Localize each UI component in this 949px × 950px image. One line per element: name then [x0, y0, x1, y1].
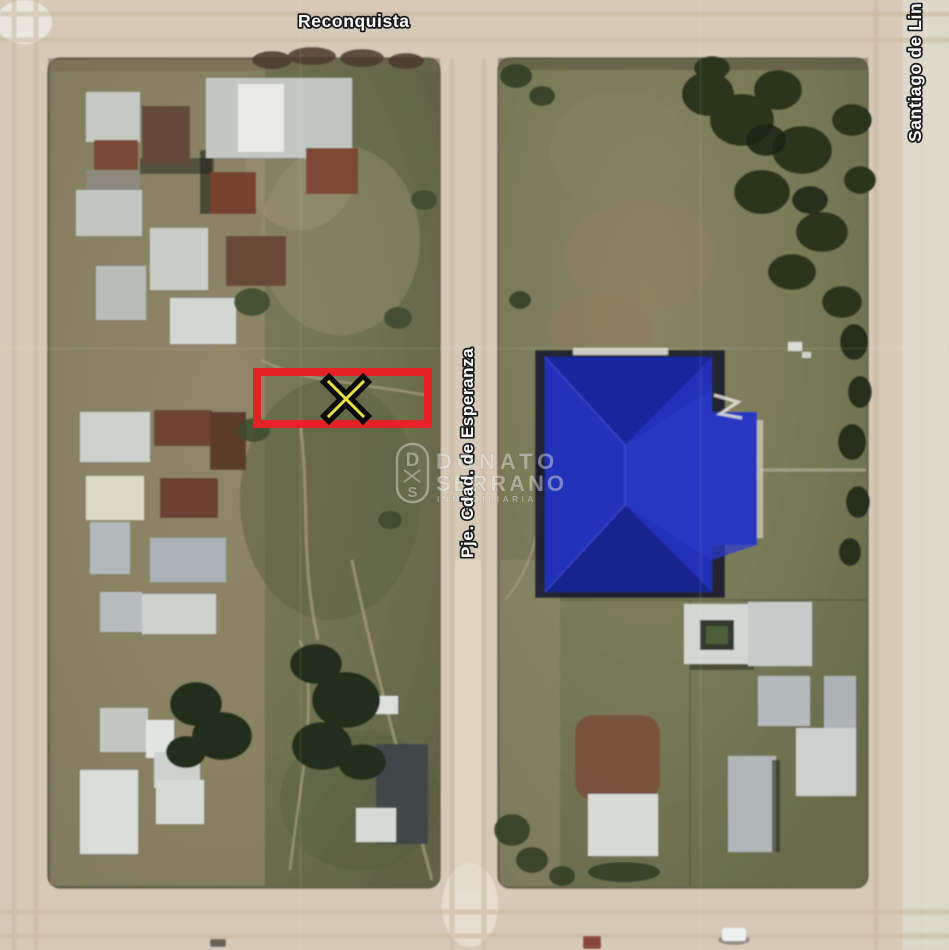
bare-dirt-patch [575, 715, 660, 800]
agency-watermark: D S DONATO SERRANO INMOBILIARIA [397, 444, 567, 504]
small-structure [802, 352, 811, 358]
house-roof [758, 676, 810, 726]
house-roof [748, 602, 812, 666]
house-roof [142, 594, 216, 634]
street-label-santiago-de-lin: Santiago de Lin [905, 3, 925, 142]
watermark-name-line2: SERRANO [436, 471, 567, 496]
house-roof [150, 538, 226, 582]
house-roof [728, 756, 776, 852]
house-roof [796, 728, 856, 796]
house-roof [588, 794, 658, 856]
house-roof [824, 676, 856, 728]
house-roof [306, 148, 358, 194]
house-roof [76, 190, 142, 236]
house-roof [226, 236, 286, 286]
house-roof [150, 228, 208, 290]
house-roof [86, 476, 144, 520]
house-roof [100, 708, 148, 752]
house-roof [160, 478, 218, 518]
house-roof [210, 412, 246, 470]
house-roof [356, 808, 396, 842]
red-vehicle [583, 936, 601, 949]
house-roof [238, 84, 284, 152]
white-vehicle [722, 928, 746, 941]
house-roof [96, 266, 146, 320]
house-roof [80, 412, 150, 462]
house-roof [154, 410, 212, 446]
satellite-map-canvas: Reconquista Pje. Cdad. de Esperanza Sant… [0, 0, 949, 950]
house-roof [90, 522, 130, 574]
house-roof [170, 298, 236, 344]
street-label-reconquista: Reconquista [298, 11, 410, 31]
watermark-logo-letter-d: D [406, 450, 420, 471]
house-roof [80, 770, 138, 854]
dark-mark [210, 939, 226, 947]
house-roof [210, 172, 256, 214]
watermark-logo-letter-s: S [407, 484, 417, 501]
street-light-strip [455, 560, 481, 890]
house-roof [142, 106, 190, 164]
left-block [48, 47, 440, 888]
house-roof [86, 92, 140, 142]
satellite-map-image: Reconquista Pje. Cdad. de Esperanza Sant… [0, 0, 949, 950]
small-structure [788, 342, 802, 351]
watermark-name-line3: INMOBILIARIA [437, 494, 537, 504]
house-roof [100, 592, 142, 632]
house-roof [156, 780, 204, 824]
